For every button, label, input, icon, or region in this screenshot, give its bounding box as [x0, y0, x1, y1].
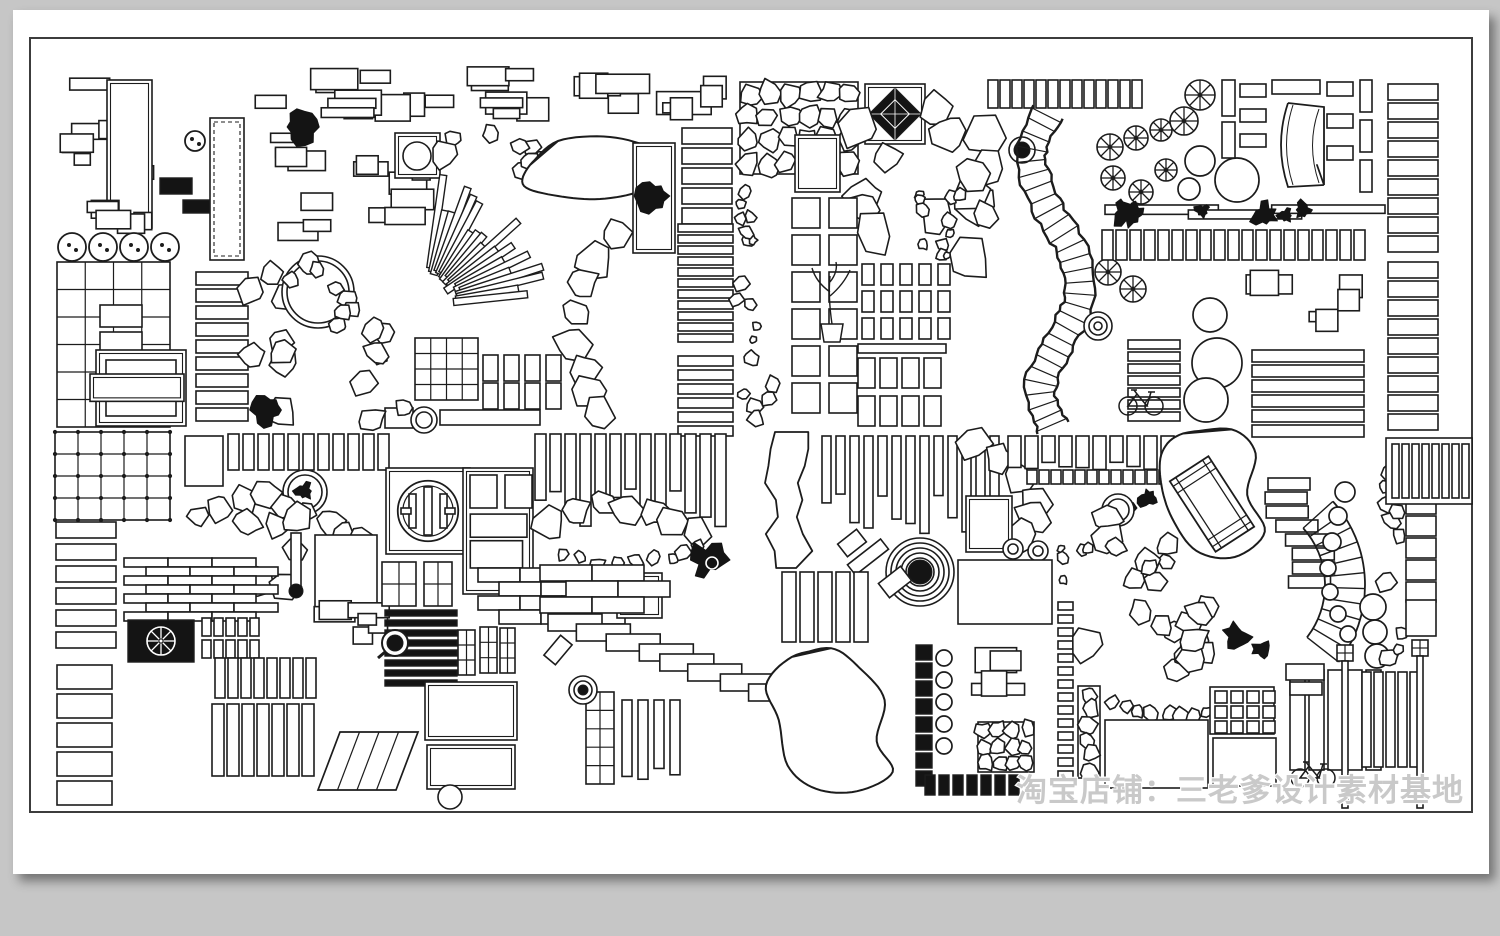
block-target-rings — [1084, 312, 1112, 340]
block-brick-pair-grid — [483, 355, 561, 409]
block-paver-single — [185, 436, 223, 486]
block-pole-rod — [291, 533, 301, 589]
block-circle-serpent — [1320, 482, 1389, 668]
block-square-ladder-end — [1406, 600, 1436, 636]
block-rect-col-left-b — [57, 665, 112, 805]
block-bar-pair — [622, 700, 680, 779]
block-stones-mid — [350, 317, 413, 430]
block-panel-frames — [425, 682, 517, 789]
block-grid-paving-b — [53, 430, 171, 521]
block-frame-col-rects — [470, 514, 527, 568]
block-ramp — [318, 732, 418, 790]
block-window-trio-c — [500, 628, 515, 673]
block-rect-col-left-a — [56, 522, 116, 648]
block-shrub-dark-b — [287, 109, 319, 147]
block-brick-courses — [124, 558, 278, 621]
block-plank-fence-b — [1362, 672, 1419, 767]
block-stone-row-bl — [1105, 532, 1177, 591]
block-dot-circle — [411, 407, 437, 433]
block-dark-sculpture — [691, 543, 731, 578]
block-paver-pairs — [792, 198, 857, 413]
block-slab-grid — [858, 358, 941, 426]
block-bench-plan — [90, 350, 186, 426]
block-plank-fan — [427, 175, 544, 306]
block-longevity-medallion — [386, 468, 470, 554]
block-lintel — [1272, 80, 1320, 94]
block-dark-shrub-c — [1223, 621, 1253, 649]
block-comb-block — [215, 658, 316, 698]
block-pebble-col — [1078, 686, 1101, 781]
block-circle-col — [936, 650, 952, 754]
block-ring-pair-a — [1003, 539, 1023, 559]
block-ring-pair-b — [1028, 541, 1048, 561]
block-window-trio-b — [480, 627, 497, 673]
block-comb-row-a — [228, 434, 389, 470]
block-stepping-path-a — [553, 219, 633, 429]
block-rect-col-a — [1222, 80, 1235, 158]
block-window-a — [382, 562, 416, 606]
block-dark-square-col — [916, 645, 932, 786]
block-dark-rects-br — [1286, 664, 1324, 695]
block-fence-row — [1102, 230, 1365, 260]
block-rect-col-d — [1360, 80, 1372, 192]
block-pole-ball-dot — [289, 584, 303, 598]
block-bump-comb — [1008, 436, 1174, 469]
block-dark-bar-row — [925, 775, 1019, 795]
block-window-bottom — [586, 692, 614, 784]
block-magnifier — [378, 630, 408, 658]
block-leaf — [544, 635, 572, 665]
block-blank-panel-a — [958, 560, 1052, 624]
block-paving-rects-c — [255, 69, 424, 122]
block-dark-knob-ring — [438, 785, 462, 809]
block-plank-row-top — [988, 80, 1142, 108]
block-rock-outline — [765, 432, 812, 568]
block-tree-dot-circle — [185, 131, 205, 151]
block-paving-rects-i — [314, 601, 389, 644]
block-paving-rects-f — [425, 67, 549, 121]
block-ladder-right-b — [1388, 262, 1438, 430]
block-pond-b — [766, 648, 893, 793]
block-strip-ladder-b — [678, 356, 733, 436]
block-rect-outlines — [972, 648, 1025, 696]
block-window-trio-a — [458, 630, 475, 675]
block-paving-rects-e — [271, 133, 333, 240]
block-dark-slabs — [160, 178, 211, 213]
block-ladder-right-a — [1388, 84, 1438, 252]
block-paver-circle — [403, 142, 431, 170]
block-pebble-chain-b — [738, 350, 780, 427]
block-curved-wall — [1281, 103, 1324, 187]
block-dark-shrub-d — [1252, 641, 1270, 659]
cad-drawing: 淘宝店铺：三老爹设计素材基地 — [0, 0, 1500, 936]
block-pebble-square — [974, 719, 1034, 772]
block-rect-col-c — [1327, 82, 1353, 160]
block-square-strip — [1027, 470, 1169, 484]
block-strip-long — [1252, 350, 1364, 437]
block-shrub-circles-b — [1184, 298, 1242, 422]
block-spiral-core — [578, 685, 588, 695]
block-bar-grid — [862, 264, 950, 339]
block-slab-strip — [858, 344, 946, 353]
block-rect-col-b — [1240, 84, 1266, 147]
block-island-plant-b — [1137, 489, 1157, 507]
block-shrub-circles — [1178, 146, 1259, 202]
block-paving-rects-h — [1246, 270, 1362, 331]
block-planter-dashed — [210, 118, 244, 260]
block-pebble-bits — [1057, 542, 1093, 584]
block-dark-panel-pin — [147, 627, 175, 655]
block-paving-rects-g — [574, 73, 726, 120]
block-frame-panel — [795, 135, 840, 192]
block-thin-ladder — [1058, 602, 1073, 779]
watermark-text: 淘宝店铺：三老爹设计素材基地 — [1016, 773, 1464, 809]
block-bar-screen — [212, 704, 314, 776]
block-strip-ladder-a — [678, 224, 733, 342]
block-grid-square-d — [415, 338, 478, 400]
block-plank-row-b — [782, 572, 868, 642]
page-background: 淘宝店铺：三老爹设计素材基地 — [0, 0, 1500, 936]
block-mini-combs — [202, 618, 259, 658]
block-tree-circles-row — [58, 233, 179, 261]
block-strip-stack-b — [682, 128, 732, 224]
block-window-b — [424, 562, 452, 606]
